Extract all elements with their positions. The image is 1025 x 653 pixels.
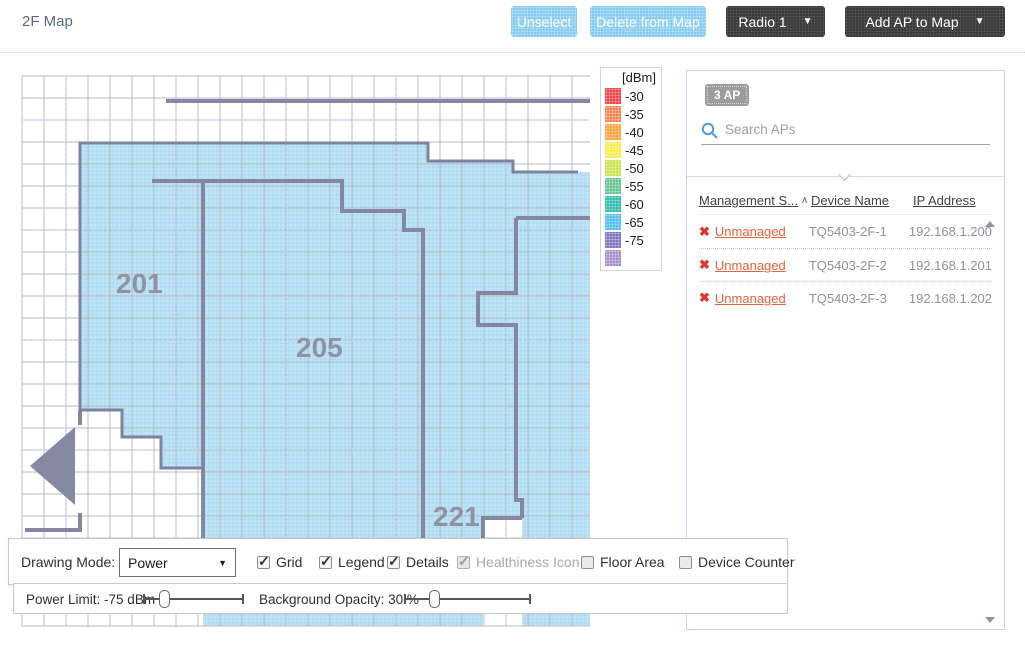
checkbox-label: Legend <box>338 554 385 570</box>
status-link[interactable]: Unmanaged <box>715 224 786 239</box>
slider-thumb[interactable] <box>159 590 170 608</box>
room-label: 201 <box>116 268 163 299</box>
checkbox-grid[interactable]: Grid <box>257 554 302 570</box>
checkbox-box[interactable] <box>679 556 692 569</box>
legend-label: -75 <box>625 233 644 248</box>
legend-item: -60 <box>605 195 661 213</box>
status-link[interactable]: Unmanaged <box>715 258 786 273</box>
checkbox-device-counter[interactable]: Device Counter <box>679 554 795 570</box>
legend-swatch <box>605 160 621 176</box>
table-row[interactable]: ✖ Unmanaged TQ5403-2F-1 192.168.1.200 <box>699 215 992 248</box>
column-header-management-status[interactable]: Management S... <box>699 193 798 208</box>
room-label: 205 <box>296 332 343 363</box>
unmanaged-x-icon: ✖ <box>699 224 710 240</box>
legend-swatch <box>605 250 621 266</box>
status-link[interactable]: Unmanaged <box>715 291 786 306</box>
checkbox-label: Floor Area <box>600 554 665 570</box>
ip-address-cell: 192.168.1.200 <box>909 224 992 239</box>
direction-arrow-icon <box>30 427 75 505</box>
legend-label: -35 <box>625 107 644 122</box>
slider-thumb[interactable] <box>429 590 440 608</box>
ip-address-cell: 192.168.1.202 <box>909 291 992 306</box>
header-divider <box>0 52 1025 53</box>
legend-swatch <box>605 214 621 230</box>
table-row[interactable]: ✖ Unmanaged TQ5403-2F-2 192.168.1.201 <box>699 248 992 281</box>
ip-address-cell: 192.168.1.201 <box>909 258 992 273</box>
legend-swatch <box>605 142 621 158</box>
legend-label: -45 <box>625 143 644 158</box>
ap-table: Management S... ∧ Device Name IP Address… <box>699 187 992 314</box>
checkbox-label: Device Counter <box>698 554 795 570</box>
checkbox-label: Healthiness Icon <box>476 554 580 570</box>
legend-item: -40 <box>605 123 661 141</box>
scroll-down-icon[interactable] <box>985 617 995 623</box>
device-name-cell: TQ5403-2F-2 <box>809 258 909 273</box>
legend-label: -60 <box>625 197 644 212</box>
delete-from-map-label: Delete from Map <box>596 14 699 30</box>
legend-label: -50 <box>625 161 644 176</box>
opacity-slider[interactable] <box>404 589 531 609</box>
power-limit-slider[interactable] <box>143 589 244 609</box>
unselect-button[interactable]: Unselect <box>511 6 577 37</box>
scroll-up-icon[interactable] <box>985 221 995 227</box>
opacity-caption: Background Opacity: <box>259 592 384 607</box>
legend-title: [dBm] <box>605 70 661 85</box>
legend-swatch <box>605 88 621 104</box>
opacity-label: Background Opacity: 30 % <box>259 592 419 607</box>
checkbox-box[interactable] <box>387 556 400 569</box>
column-header-ip-address[interactable]: IP Address <box>913 193 992 208</box>
drawing-mode-select[interactable]: Power ▼ <box>119 548 236 577</box>
legend-item: -45 <box>605 141 661 159</box>
unmanaged-x-icon: ✖ <box>699 257 710 273</box>
legend-swatch <box>605 196 621 212</box>
checkbox-box[interactable] <box>581 556 594 569</box>
checkbox-box <box>457 556 470 569</box>
legend-swatch <box>605 106 621 122</box>
legend-label: -40 <box>625 125 644 140</box>
device-name-cell: TQ5403-2F-3 <box>809 291 909 306</box>
legend-label: -30 <box>625 89 644 104</box>
search-underline <box>701 144 990 145</box>
drawing-options-panel: Drawing Mode: Power ▼ Grid Legend Detail… <box>8 538 788 585</box>
legend-item <box>605 249 661 267</box>
room-label: 221 <box>433 501 480 532</box>
checkbox-healthiness-icon: Healthiness Icon <box>457 554 580 570</box>
legend-item: -55 <box>605 177 661 195</box>
drawing-mode-label: Drawing Mode: <box>21 554 115 570</box>
power-limit-label: Power Limit: -75 dBm <box>26 592 155 607</box>
table-header-row: Management S... ∧ Device Name IP Address <box>699 187 992 215</box>
legend-item: -50 <box>605 159 661 177</box>
checkbox-floor-area[interactable]: Floor Area <box>581 554 665 570</box>
collapse-handle-icon[interactable] <box>838 168 851 181</box>
caret-down-icon: ▼ <box>218 558 227 568</box>
add-ap-to-map-button[interactable]: Add AP to Map ▼ <box>845 6 1005 37</box>
checkbox-details[interactable]: Details <box>387 554 449 570</box>
sliders-panel: Power Limit: -75 dBm Background Opacity:… <box>13 583 788 614</box>
legend-label: -65 <box>625 215 644 230</box>
delete-from-map-button[interactable]: Delete from Map <box>590 6 706 37</box>
power-limit-caption: Power Limit: <box>26 592 100 607</box>
legend-item: -75 <box>605 231 661 249</box>
legend-swatch <box>605 178 621 194</box>
search-icon <box>701 122 719 140</box>
column-header-device-name[interactable]: Device Name <box>811 193 913 208</box>
device-name-cell: TQ5403-2F-1 <box>809 224 909 239</box>
checkbox-legend[interactable]: Legend <box>319 554 385 570</box>
checkbox-box[interactable] <box>319 556 332 569</box>
page-title: 2F Map <box>22 13 73 30</box>
legend-swatch <box>605 232 621 248</box>
unselect-button-label: Unselect <box>517 14 571 30</box>
radio-select-button[interactable]: Radio 1 ▼ <box>726 6 825 37</box>
drawing-mode-value: Power <box>128 555 168 571</box>
caret-down-icon: ▼ <box>975 16 985 27</box>
checkbox-label: Details <box>406 554 449 570</box>
legend-label: -55 <box>625 179 644 194</box>
checkbox-box[interactable] <box>257 556 270 569</box>
checkbox-label: Grid <box>276 554 302 570</box>
legend: [dBm] -30 -35 -40 -45 -50 -55 -60 -65 -7… <box>600 67 662 271</box>
legend-item: -65 <box>605 213 661 231</box>
unmanaged-x-icon: ✖ <box>699 290 710 306</box>
caret-down-icon: ▼ <box>803 16 813 27</box>
legend-item: -35 <box>605 105 661 123</box>
radio-select-label: Radio 1 <box>738 14 786 30</box>
ap-count-badge: 3 AP <box>705 84 749 106</box>
search-input[interactable] <box>725 122 975 137</box>
sort-ascending-icon: ∧ <box>801 195 808 206</box>
legend-item: -30 <box>605 87 661 105</box>
table-row[interactable]: ✖ Unmanaged TQ5403-2F-3 192.168.1.202 <box>699 281 992 314</box>
add-ap-label: Add AP to Map <box>865 14 958 30</box>
legend-swatch <box>605 124 621 140</box>
